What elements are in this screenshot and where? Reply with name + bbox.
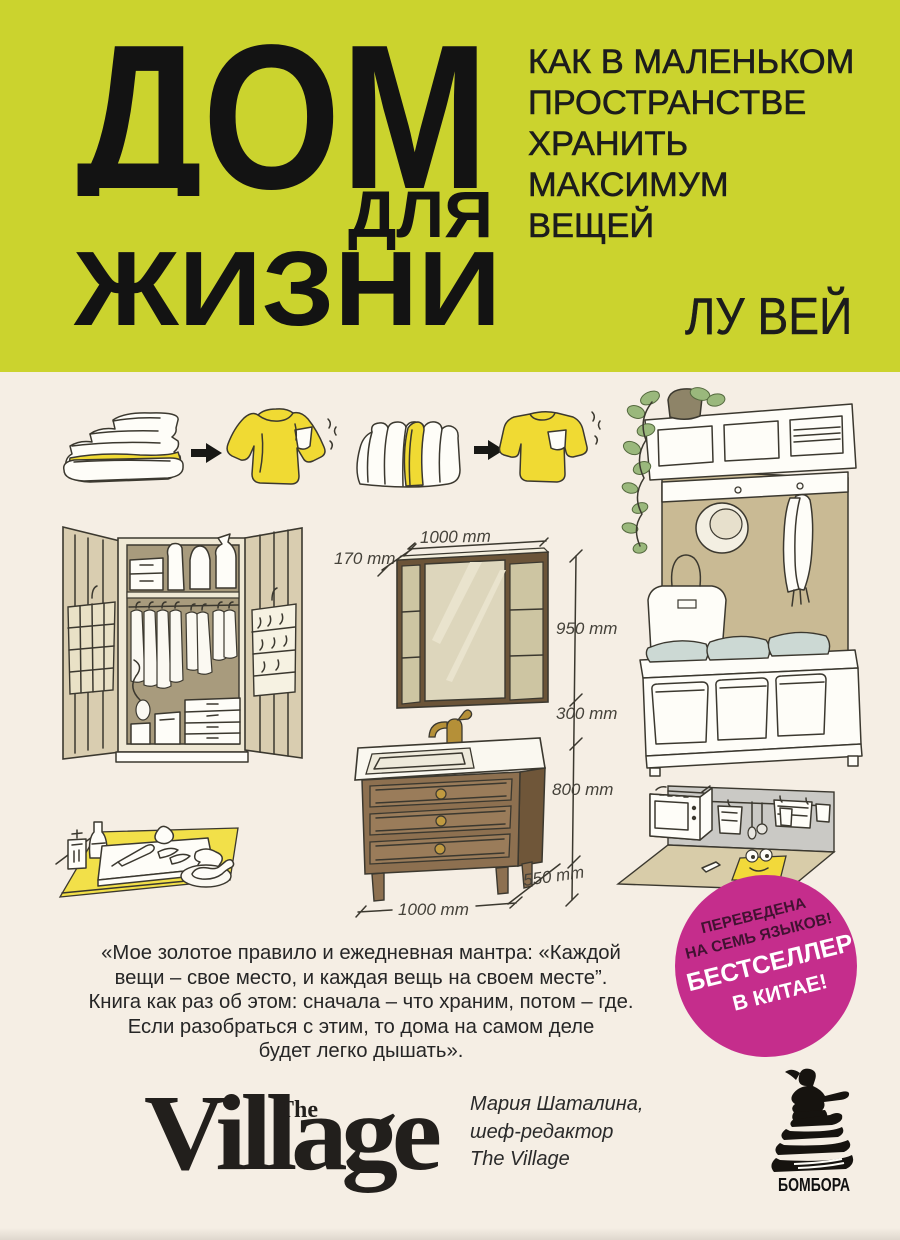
svg-text:300 mm: 300 mm	[556, 704, 617, 723]
svg-text:800 mm: 800 mm	[552, 780, 613, 799]
svg-text:1000 mm: 1000 mm	[420, 527, 491, 547]
svg-text:170 mm: 170 mm	[334, 549, 395, 568]
svg-text:1000 mm: 1000 mm	[398, 900, 469, 919]
svg-text:950 mm: 950 mm	[556, 619, 617, 638]
